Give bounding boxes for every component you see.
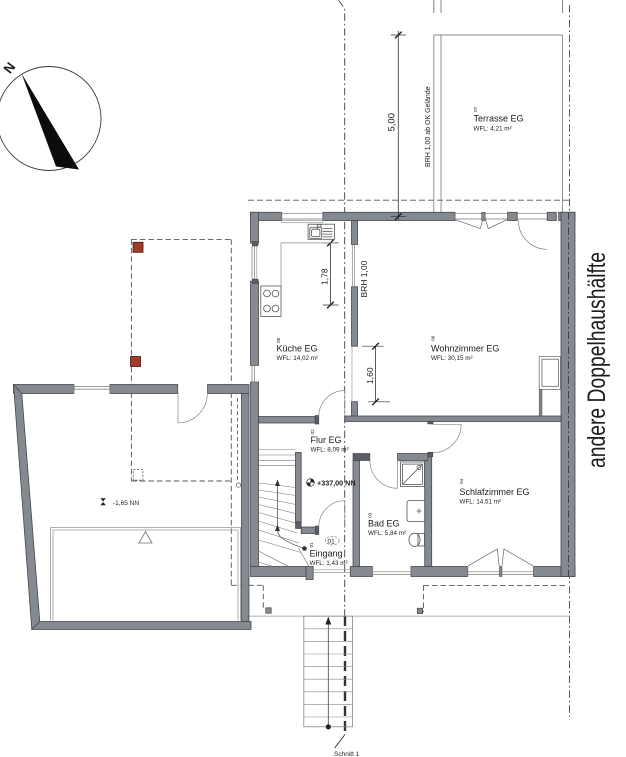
svg-text:Terrasse EG: Terrasse EG	[474, 114, 524, 124]
svg-text:03: 03	[368, 512, 374, 518]
svg-text:02: 02	[310, 429, 316, 435]
svg-text:01: 01	[328, 539, 336, 546]
svg-text:BRH 1,00 ab OK Gelände: BRH 1,00 ab OK Gelände	[425, 86, 432, 167]
svg-text:01: 01	[309, 542, 315, 548]
svg-text:BRH 1,00: BRH 1,00	[359, 260, 369, 297]
svg-text:andere Doppelhaushälfte: andere Doppelhaushälfte	[583, 252, 611, 468]
svg-text:07: 07	[473, 106, 479, 112]
svg-text:WFL: 4,21 m²: WFL: 4,21 m²	[474, 126, 512, 133]
svg-text:WFL: 5,84 m²: WFL: 5,84 m²	[368, 530, 406, 537]
svg-text:05: 05	[276, 337, 282, 343]
svg-text:04: 04	[459, 478, 465, 484]
svg-text:WFL: 30,15 m²: WFL: 30,15 m²	[431, 355, 473, 362]
svg-text:Eingang: Eingang	[310, 549, 343, 559]
svg-text:Schlafzimmer EG: Schlafzimmer EG	[460, 487, 530, 497]
svg-text:Küche EG: Küche EG	[277, 344, 318, 354]
svg-text:WFL: 1,43 m²: WFL: 1,43 m²	[310, 560, 348, 567]
svg-text:WFL: 8,09 m²: WFL: 8,09 m²	[311, 447, 349, 454]
svg-text:WFL: 14,51 m²: WFL: 14,51 m²	[460, 499, 502, 506]
svg-text:Schnitt 1: Schnitt 1	[334, 751, 360, 757]
svg-text:Flur EG: Flur EG	[311, 435, 342, 445]
svg-text:-1,65 NN: -1,65 NN	[113, 500, 139, 507]
svg-text:Bad EG: Bad EG	[368, 519, 400, 529]
svg-text:Wohnzimmer EG: Wohnzimmer EG	[431, 344, 499, 354]
svg-text:WFL: 14,02 m²: WFL: 14,02 m²	[277, 355, 319, 362]
svg-text:5,00: 5,00	[387, 113, 398, 132]
svg-text:+337,00 NN: +337,00 NN	[317, 479, 356, 488]
svg-text:1,60: 1,60	[365, 367, 375, 384]
svg-text:06: 06	[431, 335, 437, 341]
svg-text:1,78: 1,78	[320, 268, 330, 285]
